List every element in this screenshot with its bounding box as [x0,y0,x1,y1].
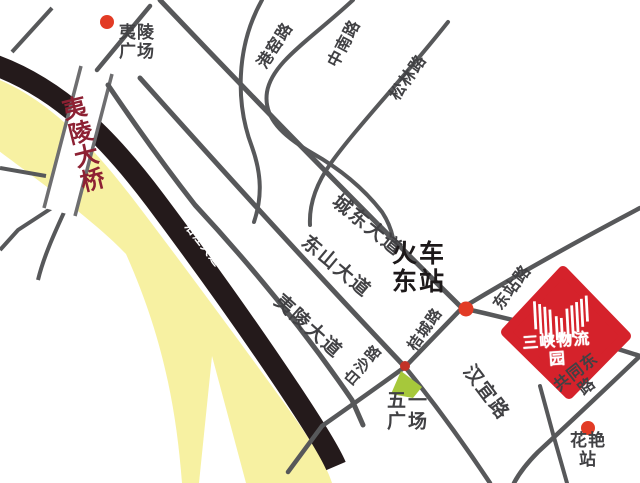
road-gangyao [241,0,262,222]
wuyi-junction-dot [400,361,410,371]
train-east-station-dot [459,302,474,317]
label-wuyi-square: 五一 广场 [387,391,429,434]
river-shape [0,78,332,483]
logo-name-text: 三峡物流园 [514,330,599,372]
label-yiling-square: 夷陵 广场 [119,23,155,61]
label-huayan-station: 花艳站 [562,431,614,469]
map-canvas: 夷陵 广场 夷 陵 大 桥 沿江大道 港窑路 中南路 松林路 城东大道 东山大道… [0,0,640,483]
yiling-square-dot [100,15,114,29]
label-train-east-station: 火车 东站 [392,240,446,296]
